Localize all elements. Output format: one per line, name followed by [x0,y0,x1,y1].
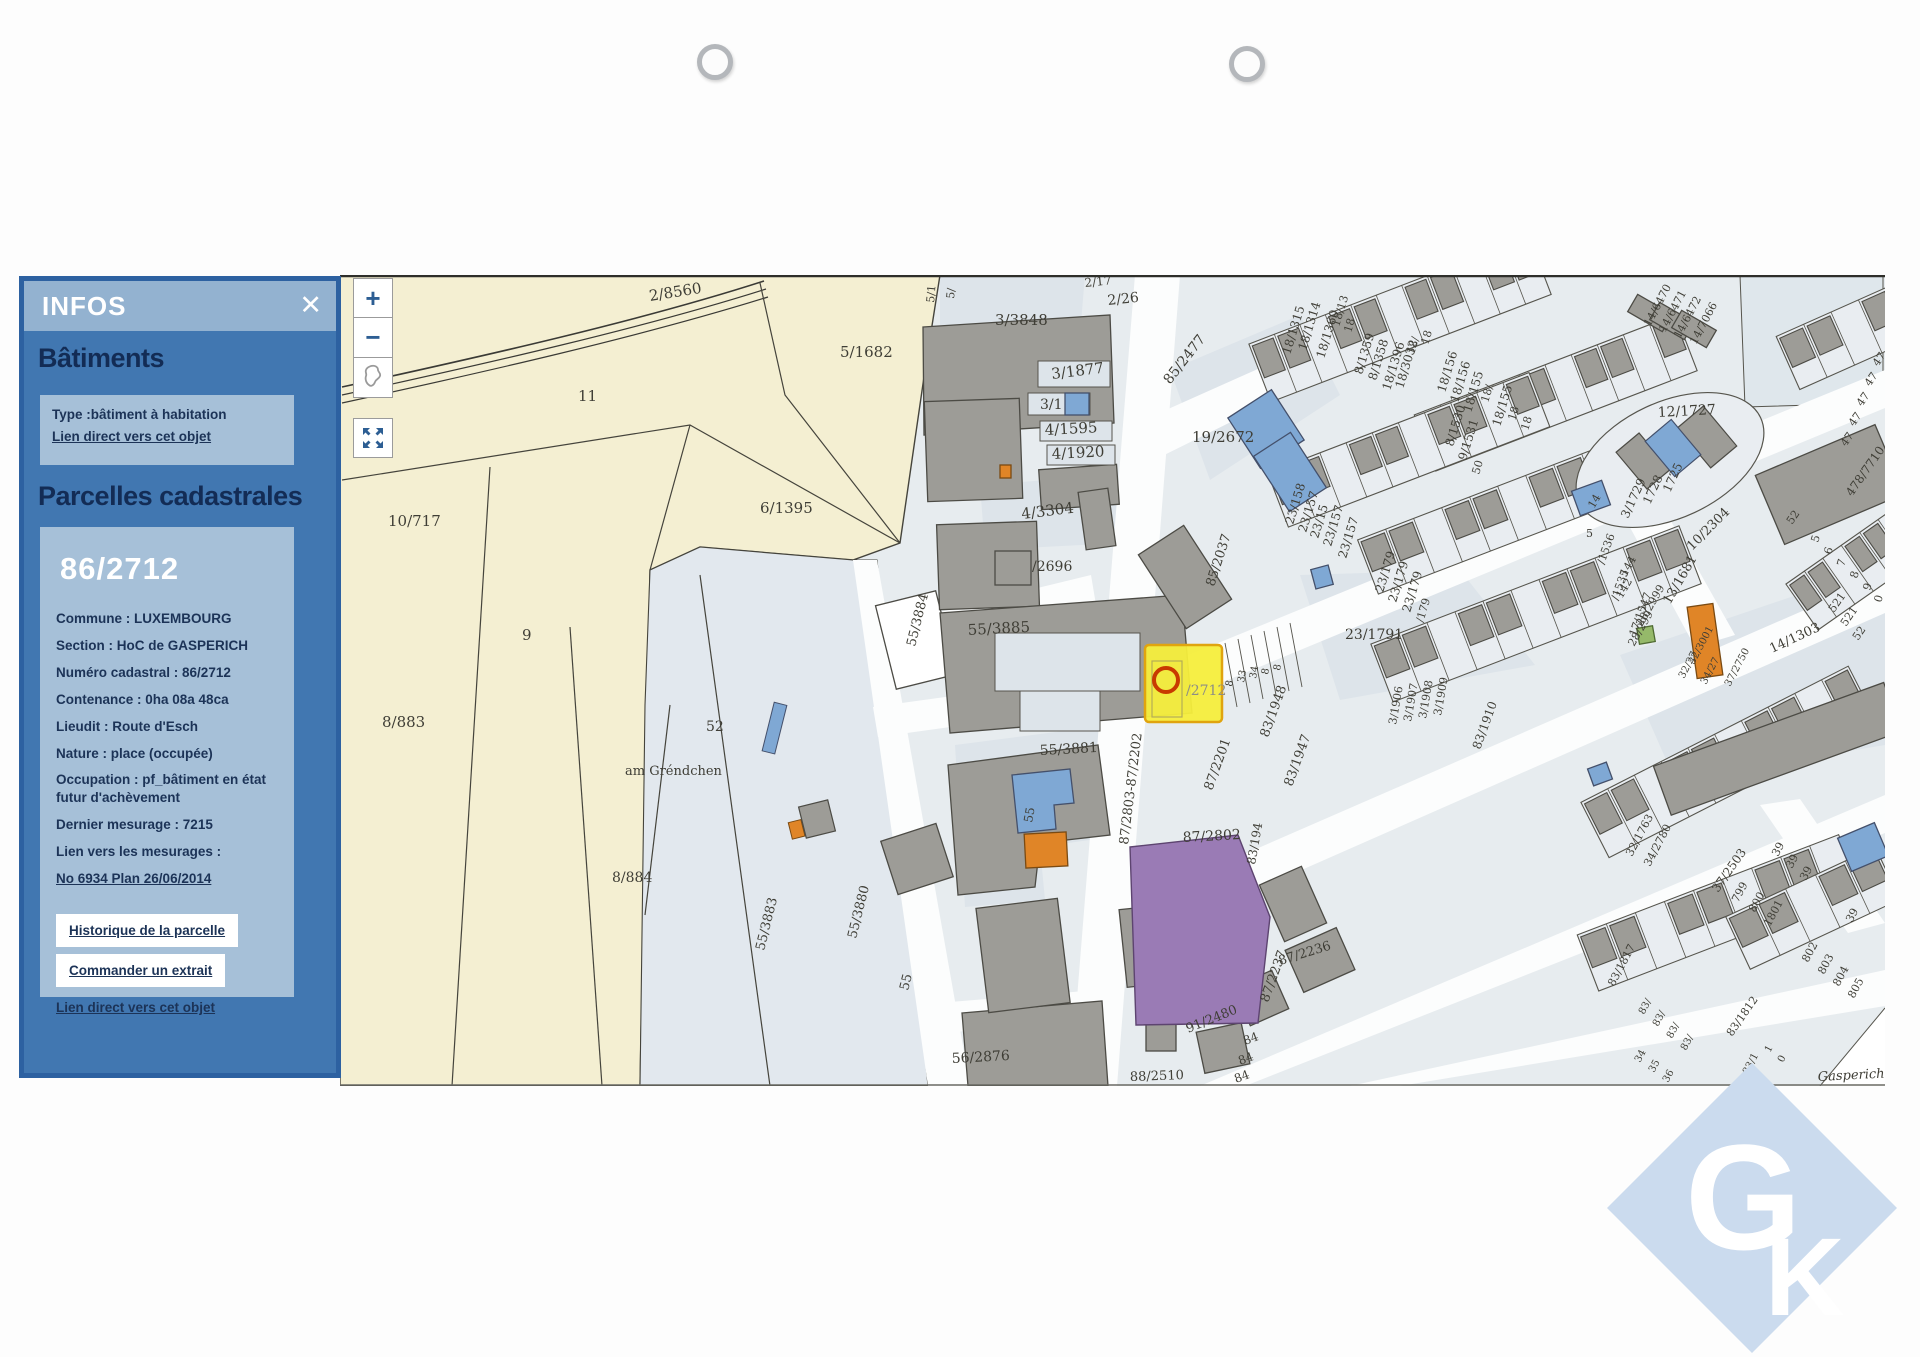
field-commune: Commune : LUXEMBOURG [56,605,278,632]
field-occupation: Occupation : pf_bâtiment en état futur d… [56,767,278,811]
batiment-direct-link[interactable]: Lien direct vers cet objet [52,429,282,444]
map-canvas[interactable]: 2/85605/1682113/38486/139510/71798/88352… [340,275,1885,1086]
minus-icon: − [365,322,380,353]
parcelles-heading: Parcelles cadastrales [38,481,302,512]
parcel-label: 55/3881 [1039,740,1098,759]
cadastral-map[interactable]: 2/85605/1682113/38486/139510/71798/88352… [340,275,1885,1086]
field-nature: Nature : place (occupée) [56,740,278,767]
field-numero: Numéro cadastral : 86/2712 [56,659,278,686]
parcel-label: 11 [578,387,597,405]
parcel-label: 9 [522,626,532,644]
field-section: Section : HoC de GASPERICH [56,632,278,659]
parcel-label: 8/884 [612,870,652,886]
parcelle-direct-link[interactable]: Lien direct vers cet objet [56,994,278,1021]
field-lien-mesurages: Lien vers les mesurages : [56,838,278,865]
logo-letter-k: K [1765,1216,1844,1339]
panel-title: INFOS [42,291,126,322]
parcel-label: /2712 [1186,683,1226,699]
panel-titlebar: INFOS ✕ [24,281,336,331]
parcel-label: 2/26 [1107,290,1140,309]
plus-icon: + [365,283,380,314]
fullscreen-arrows-icon [361,426,385,450]
batiments-box: Type :bâtiment à habitation Lien direct … [40,395,294,465]
parcel-label: 6/1395 [760,499,813,517]
zoom-out-button[interactable]: − [353,318,393,358]
parcel-label: 55/3885 [967,618,1030,639]
parcel-label: 55 [1021,806,1037,823]
parcel-label: 34 [1248,665,1261,679]
mesurage-plan-link[interactable]: No 6934 Plan 26/06/2014 [56,865,278,892]
scanned-page: 2/85605/1682113/38486/139510/71798/88352… [0,0,1920,1357]
parcel-label: 19/2672 [1192,428,1254,446]
field-lieudit: Lieudit : Route d'Esch [56,713,278,740]
parcel-label: 3/3848 [995,311,1048,329]
parcel-label: 52 [706,719,724,735]
full-extent-button[interactable] [353,358,393,398]
hole-punch [697,44,733,80]
close-icon[interactable]: ✕ [299,289,322,321]
parcel-number: 86/2712 [60,551,278,587]
hole-punch [1229,46,1265,82]
parcel-label: 5/1682 [840,343,893,361]
parcel-label: 87/2802 [1182,827,1241,846]
rural-area [340,275,940,1086]
historique-button[interactable]: Historique de la parcelle [56,914,238,947]
field-mesurage: Dernier mesurage : 7215 [56,811,278,838]
zoom-in-button[interactable]: + [353,278,393,318]
parcel-label: 5/1 [924,284,938,303]
batiment-type: Type :bâtiment à habitation [52,407,282,422]
batiments-heading: Bâtiments [38,343,164,374]
parcel-label: 3/1 [1040,397,1063,413]
parcel-label: 33 [1236,669,1249,683]
parcel-label: 12/1727 [1657,402,1716,421]
commander-button[interactable]: Commander un extrait [56,954,225,987]
parcel-label: 4/1595 [1044,418,1098,439]
parcel-label: 88/2510 [1130,1068,1185,1085]
gk-watermark: G K [1607,1063,1897,1353]
field-contenance: Contenance : 0ha 08a 48ca [56,686,278,713]
parcel-label: 5/ [944,287,958,299]
parcel-label: 8/883 [382,713,425,731]
parcel-label: am Gréndchen [625,764,723,779]
parcel-label: 56/2876 [951,1048,1010,1067]
luxembourg-outline-icon [360,364,386,392]
parcel-label: 23/1791 [1345,627,1403,643]
parcel-label: 5 [1586,527,1593,540]
parcelle-box: 86/2712 Commune : LUXEMBOURG Section : H… [40,527,294,997]
map-controls: + − [353,278,393,458]
fullscreen-button[interactable] [353,418,393,458]
parcel-label: 4/1920 [1051,442,1105,463]
parcel-label: /2696 [1032,559,1072,575]
parcel-label: 10/717 [388,512,441,530]
info-panel: INFOS ✕ Bâtiments Type :bâtiment à habit… [19,276,341,1078]
